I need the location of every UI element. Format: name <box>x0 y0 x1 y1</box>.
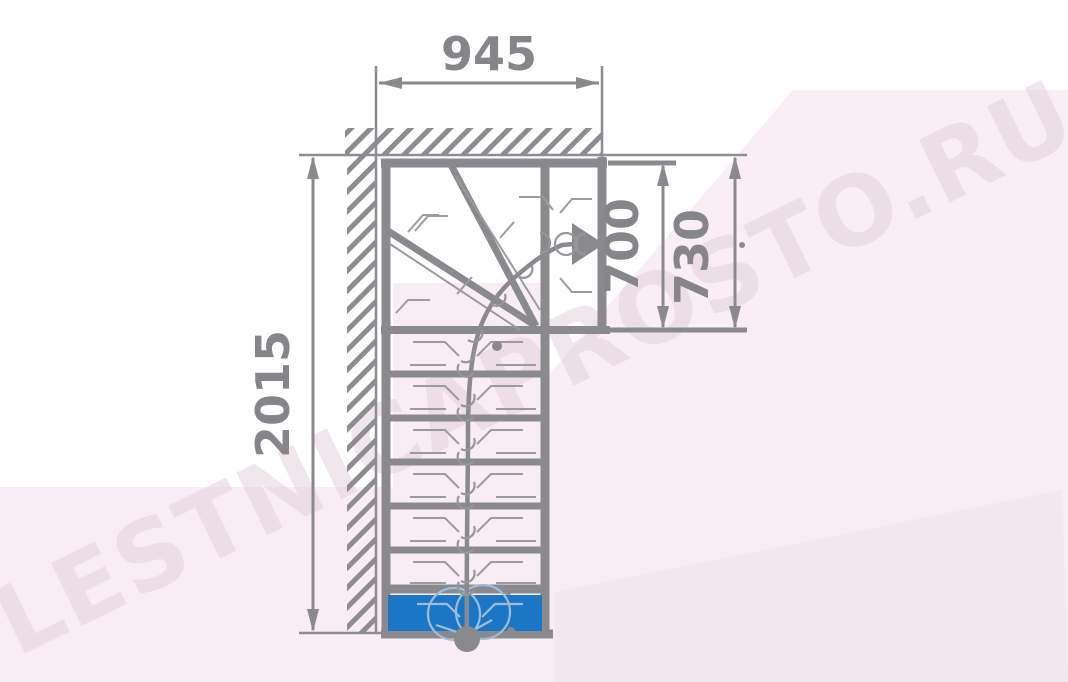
dim-arrow-bottom <box>729 306 741 329</box>
dimension-label-945: 945 <box>441 27 537 81</box>
detail-bracket <box>500 222 514 238</box>
dimension-2015: 2015 <box>246 156 319 632</box>
tread-detail <box>410 386 536 409</box>
tread-detail <box>410 430 536 453</box>
detail-bracket <box>560 278 592 292</box>
dot <box>739 242 745 248</box>
hidden-edge-line <box>455 175 540 310</box>
dimension-label-2015: 2015 <box>246 330 300 458</box>
wall-hatch-top <box>345 128 603 155</box>
dim-arrow-top <box>307 156 319 179</box>
dim-arrow-bottom <box>307 609 319 632</box>
tread-detail <box>410 474 536 497</box>
dimension-label-700: 700 <box>595 198 649 294</box>
dimension-730: 730 <box>665 156 741 329</box>
dim-arrow-top <box>729 156 741 179</box>
staircase-plan-page: LESTNICAPROSTO.RU <box>0 0 1068 682</box>
dot <box>507 627 515 635</box>
detail-bracket <box>560 199 592 213</box>
dimension-label-730: 730 <box>665 209 719 305</box>
staircase-drawing: 945 2015 700 730 <box>0 0 1068 682</box>
dimension-945: 945 <box>379 27 599 89</box>
detail-bracket <box>408 215 439 232</box>
tread-detail <box>410 518 536 541</box>
dim-arrow-left <box>379 77 402 89</box>
dot <box>492 341 502 351</box>
dim-arrow-bottom <box>657 306 669 329</box>
walk-line-start-dot <box>454 626 480 652</box>
dim-arrow-right <box>576 77 599 89</box>
dot <box>503 585 513 595</box>
detail-bracket <box>396 300 430 313</box>
dim-arrow-top <box>657 163 669 186</box>
wall-hatch-left <box>347 155 377 633</box>
